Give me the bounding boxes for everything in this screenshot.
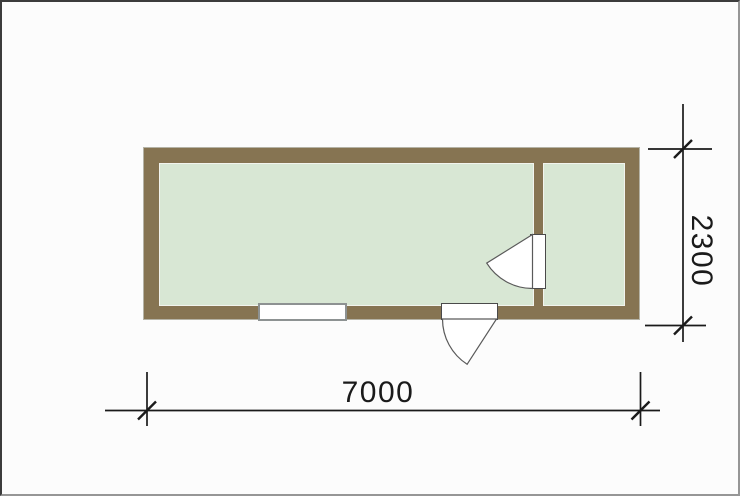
width-dimension: 7000: [105, 372, 660, 426]
width-dimension-label: 7000: [342, 376, 415, 409]
width-tick-left: [138, 402, 156, 420]
height-dimension: 2300: [645, 104, 718, 342]
width-tick-right: [632, 402, 650, 420]
secondary-room-floor: [543, 163, 625, 306]
entry-door-swing-arc: [443, 319, 497, 364]
floor-plan-canvas: 7000 2300: [0, 0, 740, 496]
entry-door-opening: [441, 303, 498, 320]
interior-door-opening: [530, 234, 546, 289]
height-dimension-label: 2300: [685, 215, 718, 288]
height-tick-bottom: [674, 317, 692, 335]
window: [258, 303, 347, 321]
height-tick-top: [674, 140, 692, 158]
main-room-floor: [159, 163, 534, 306]
